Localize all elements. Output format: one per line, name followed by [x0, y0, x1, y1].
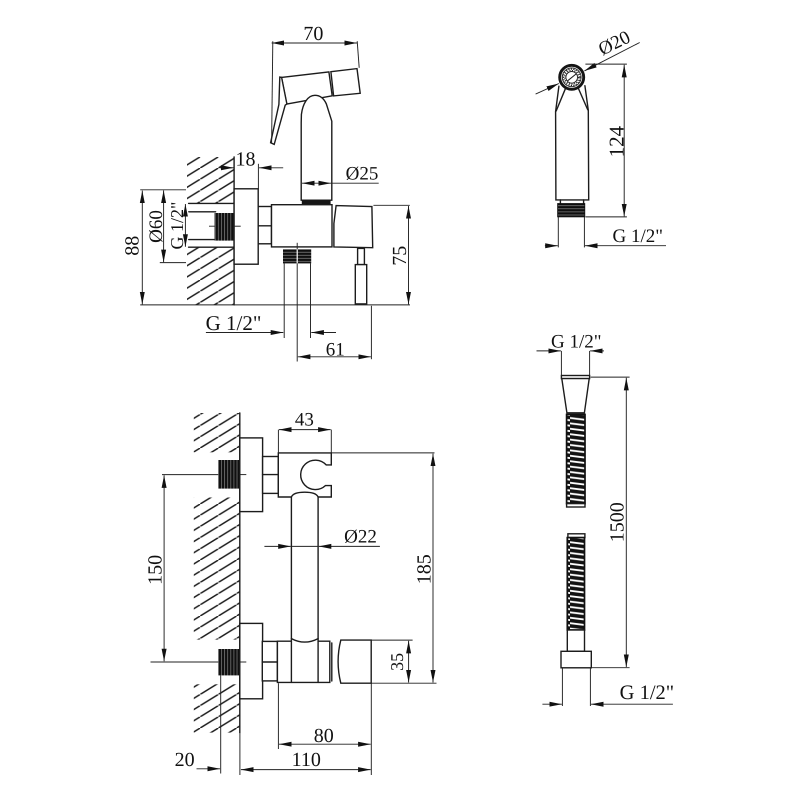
svg-text:88: 88 [122, 236, 144, 256]
svg-text:80: 80 [314, 725, 334, 747]
svg-text:20: 20 [175, 749, 195, 771]
svg-text:G 1/2": G 1/2" [167, 202, 187, 250]
svg-text:70: 70 [303, 23, 323, 45]
svg-text:43: 43 [295, 410, 314, 431]
svg-text:75: 75 [389, 246, 411, 266]
svg-text:Ø22: Ø22 [344, 527, 377, 548]
svg-text:110: 110 [292, 749, 321, 771]
svg-text:G 1/2": G 1/2" [613, 226, 664, 247]
svg-text:150: 150 [145, 555, 167, 585]
svg-text:Ø25: Ø25 [346, 164, 379, 185]
svg-text:G 1/2": G 1/2" [551, 332, 602, 353]
svg-text:61: 61 [326, 340, 345, 361]
svg-text:Ø60: Ø60 [146, 210, 167, 243]
svg-text:1500: 1500 [606, 502, 628, 542]
svg-text:124: 124 [604, 125, 628, 157]
svg-text:18: 18 [236, 149, 256, 171]
svg-text:185: 185 [414, 554, 436, 584]
svg-text:G 1/2": G 1/2" [206, 311, 262, 335]
svg-text:35: 35 [387, 653, 407, 671]
svg-text:G 1/2": G 1/2" [620, 682, 675, 704]
